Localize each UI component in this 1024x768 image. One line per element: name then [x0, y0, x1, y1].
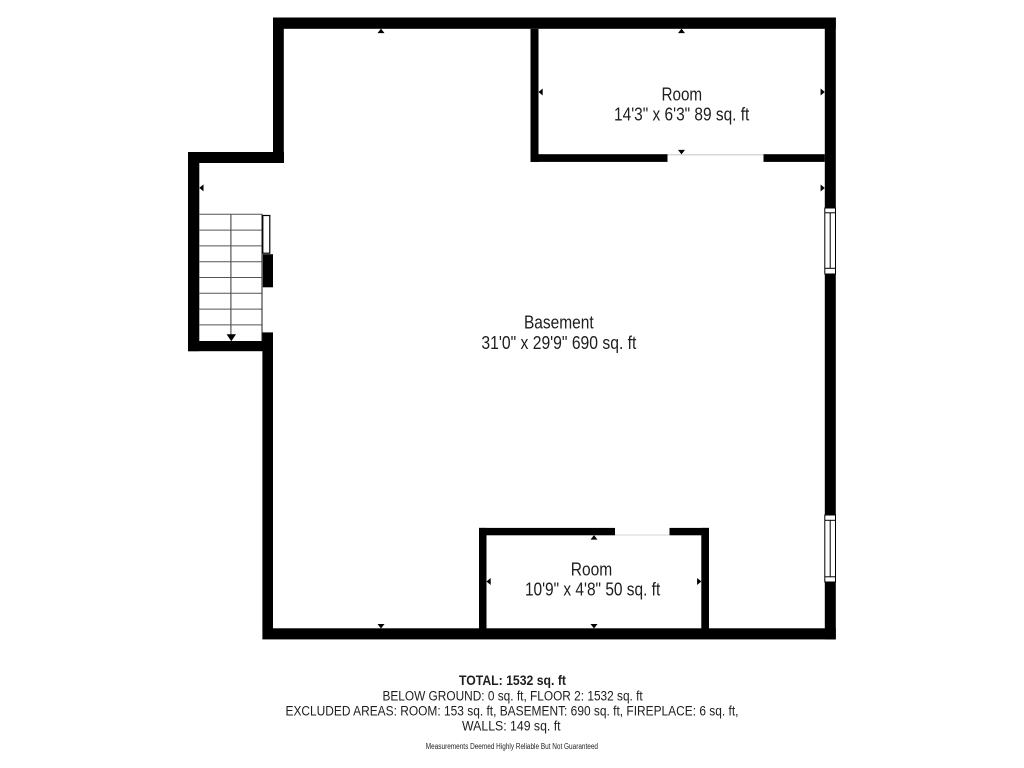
- svg-text:EXCLUDED AREAS: ROOM: 153 sq.: EXCLUDED AREAS: ROOM: 153 sq. ft, BASEME…: [286, 704, 739, 719]
- svg-text:10'9" x 4'8" 50 sq. ft: 10'9" x 4'8" 50 sq. ft: [525, 579, 661, 600]
- svg-text:Basement: Basement: [524, 312, 594, 333]
- svg-text:WALLS: 149 sq. ft: WALLS: 149 sq. ft: [462, 719, 561, 734]
- svg-text:31'0" x 29'9" 690 sq. ft: 31'0" x 29'9" 690 sq. ft: [481, 332, 637, 353]
- svg-text:TOTAL: 1532 sq. ft: TOTAL: 1532 sq. ft: [459, 673, 566, 688]
- svg-text:Room: Room: [661, 83, 702, 104]
- svg-text:14'3" x 6'3" 89 sq. ft: 14'3" x 6'3" 89 sq. ft: [614, 103, 750, 124]
- svg-text:Room: Room: [571, 559, 613, 580]
- svg-text:BELOW GROUND: 0 sq. ft, FLOOR: BELOW GROUND: 0 sq. ft, FLOOR 2: 1532 sq…: [382, 688, 643, 703]
- svg-text:Measurements Deemed Highly Rel: Measurements Deemed Highly Reliable But …: [426, 742, 598, 751]
